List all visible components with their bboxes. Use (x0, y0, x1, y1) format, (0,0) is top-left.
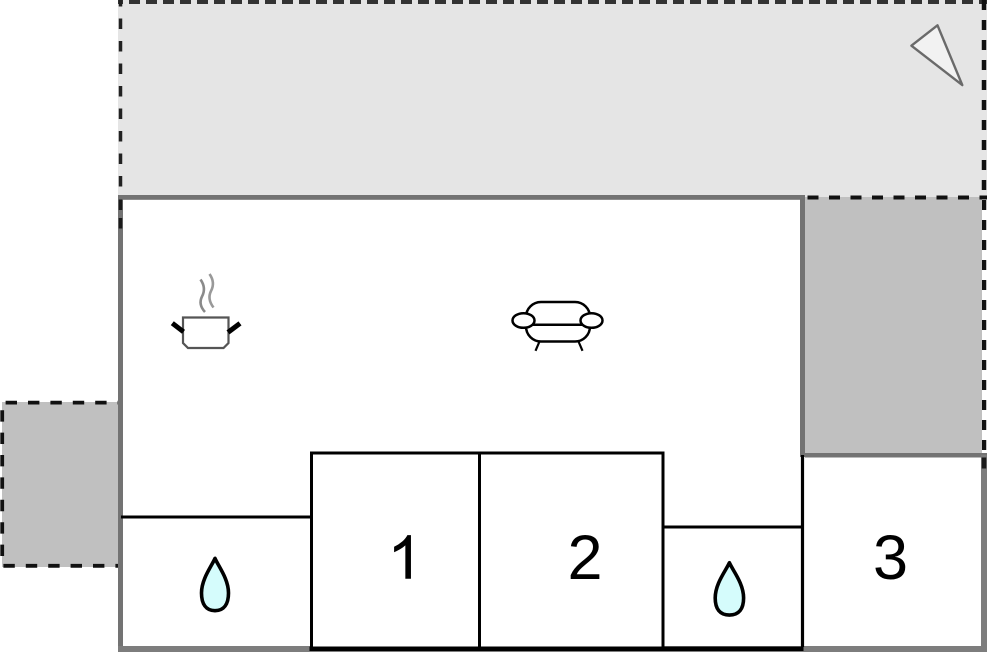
svg-text:2: 2 (567, 523, 602, 593)
svg-text:3: 3 (873, 523, 908, 593)
